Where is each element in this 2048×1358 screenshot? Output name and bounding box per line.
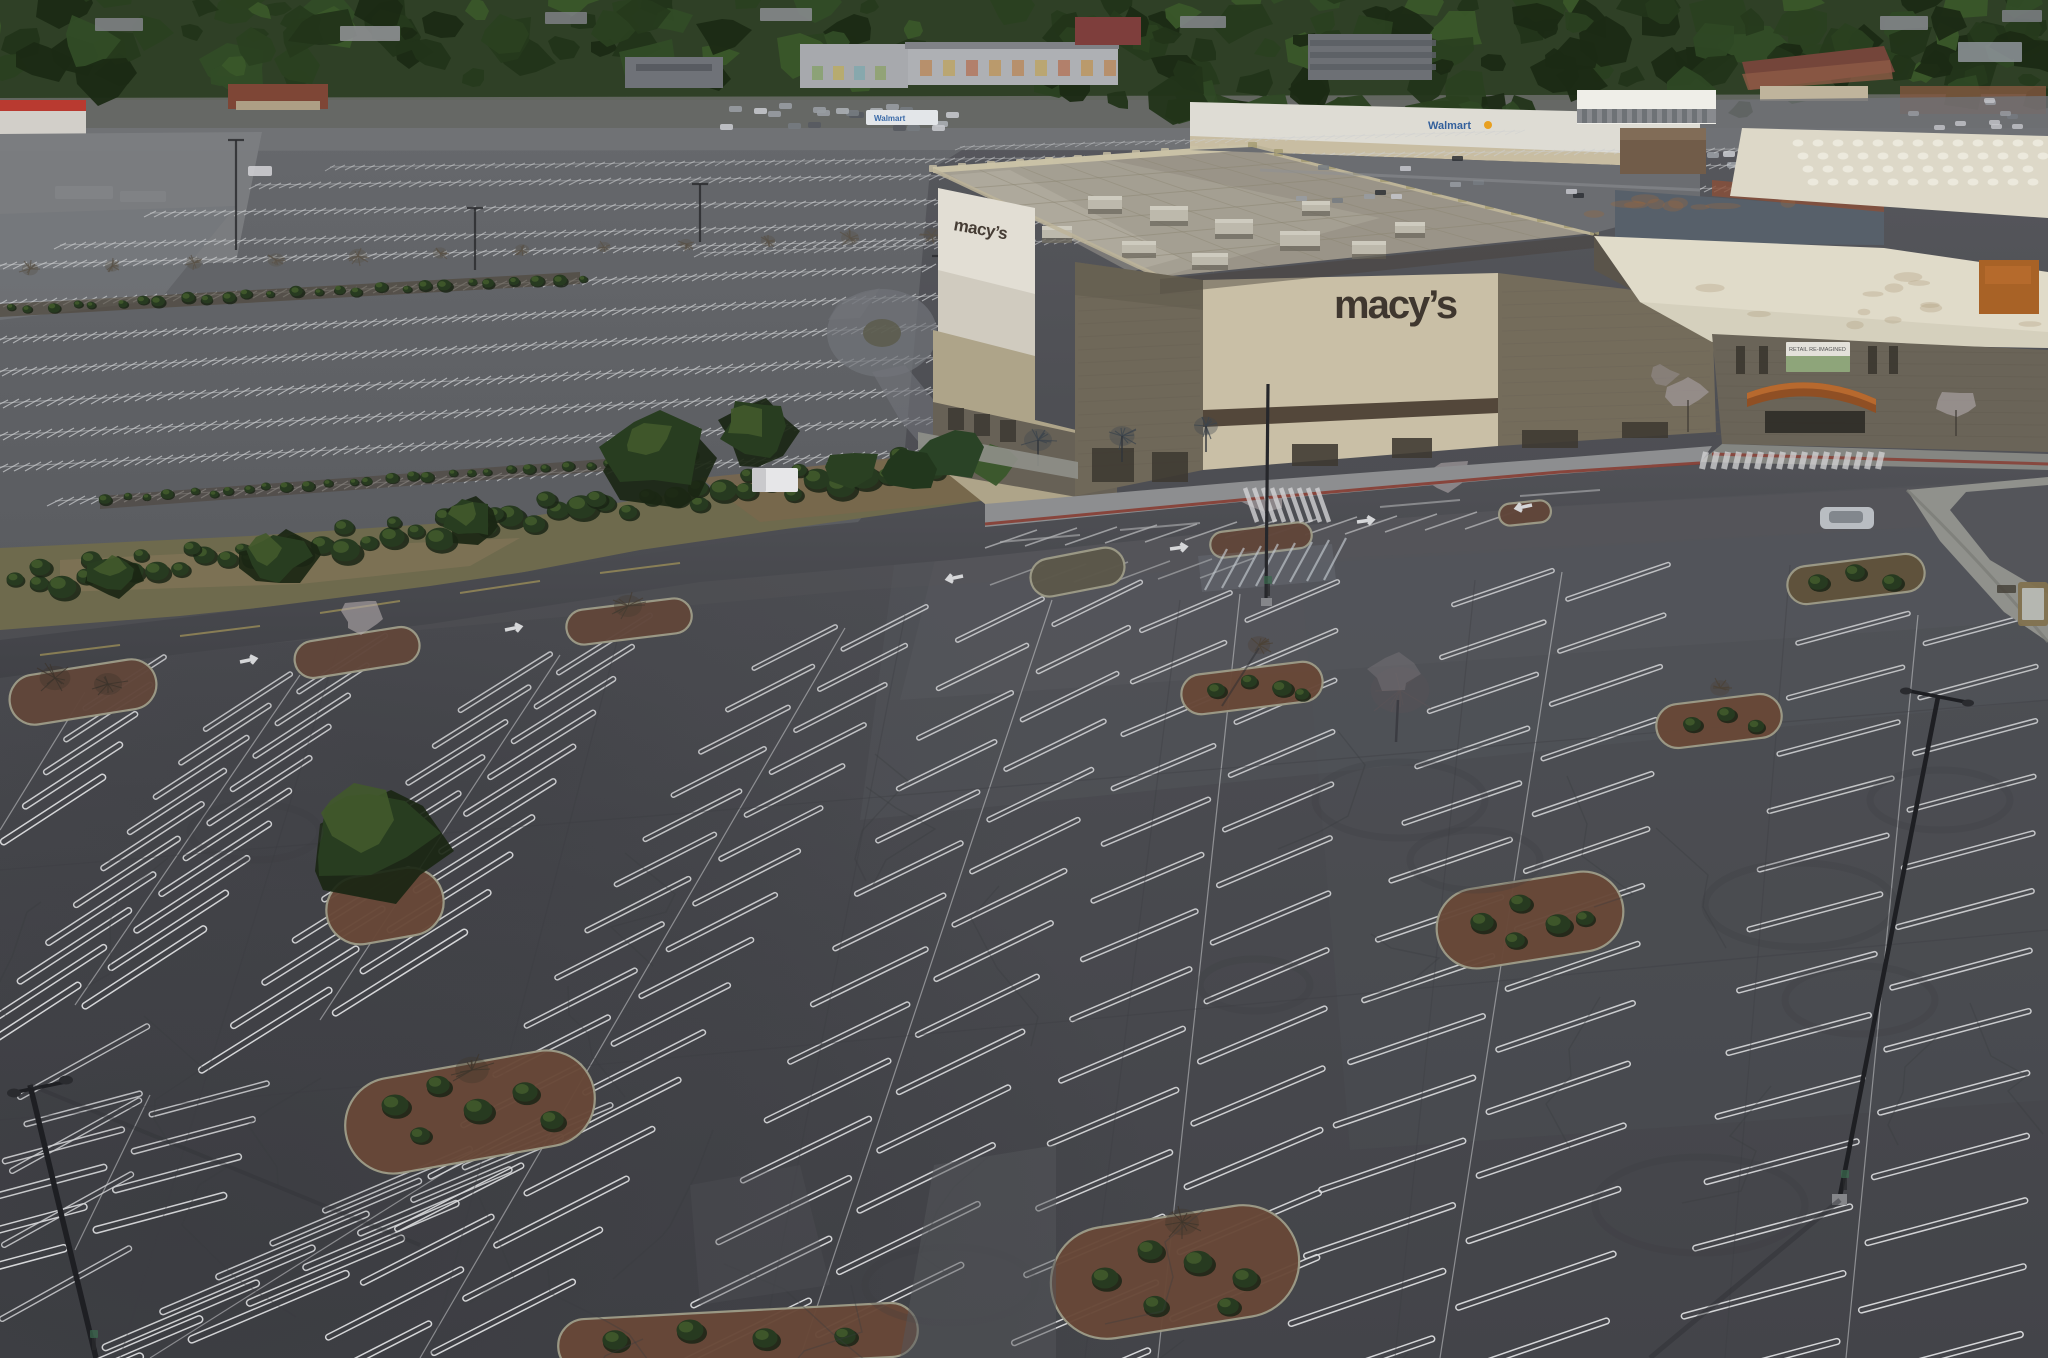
svg-text:Walmart: Walmart [874,114,906,123]
svg-text:RETAIL RE-IMAGINED: RETAIL RE-IMAGINED [1789,347,1846,353]
svg-text:Walmart: Walmart [1428,120,1471,132]
svg-text:macy’s: macy’s [1334,283,1457,327]
